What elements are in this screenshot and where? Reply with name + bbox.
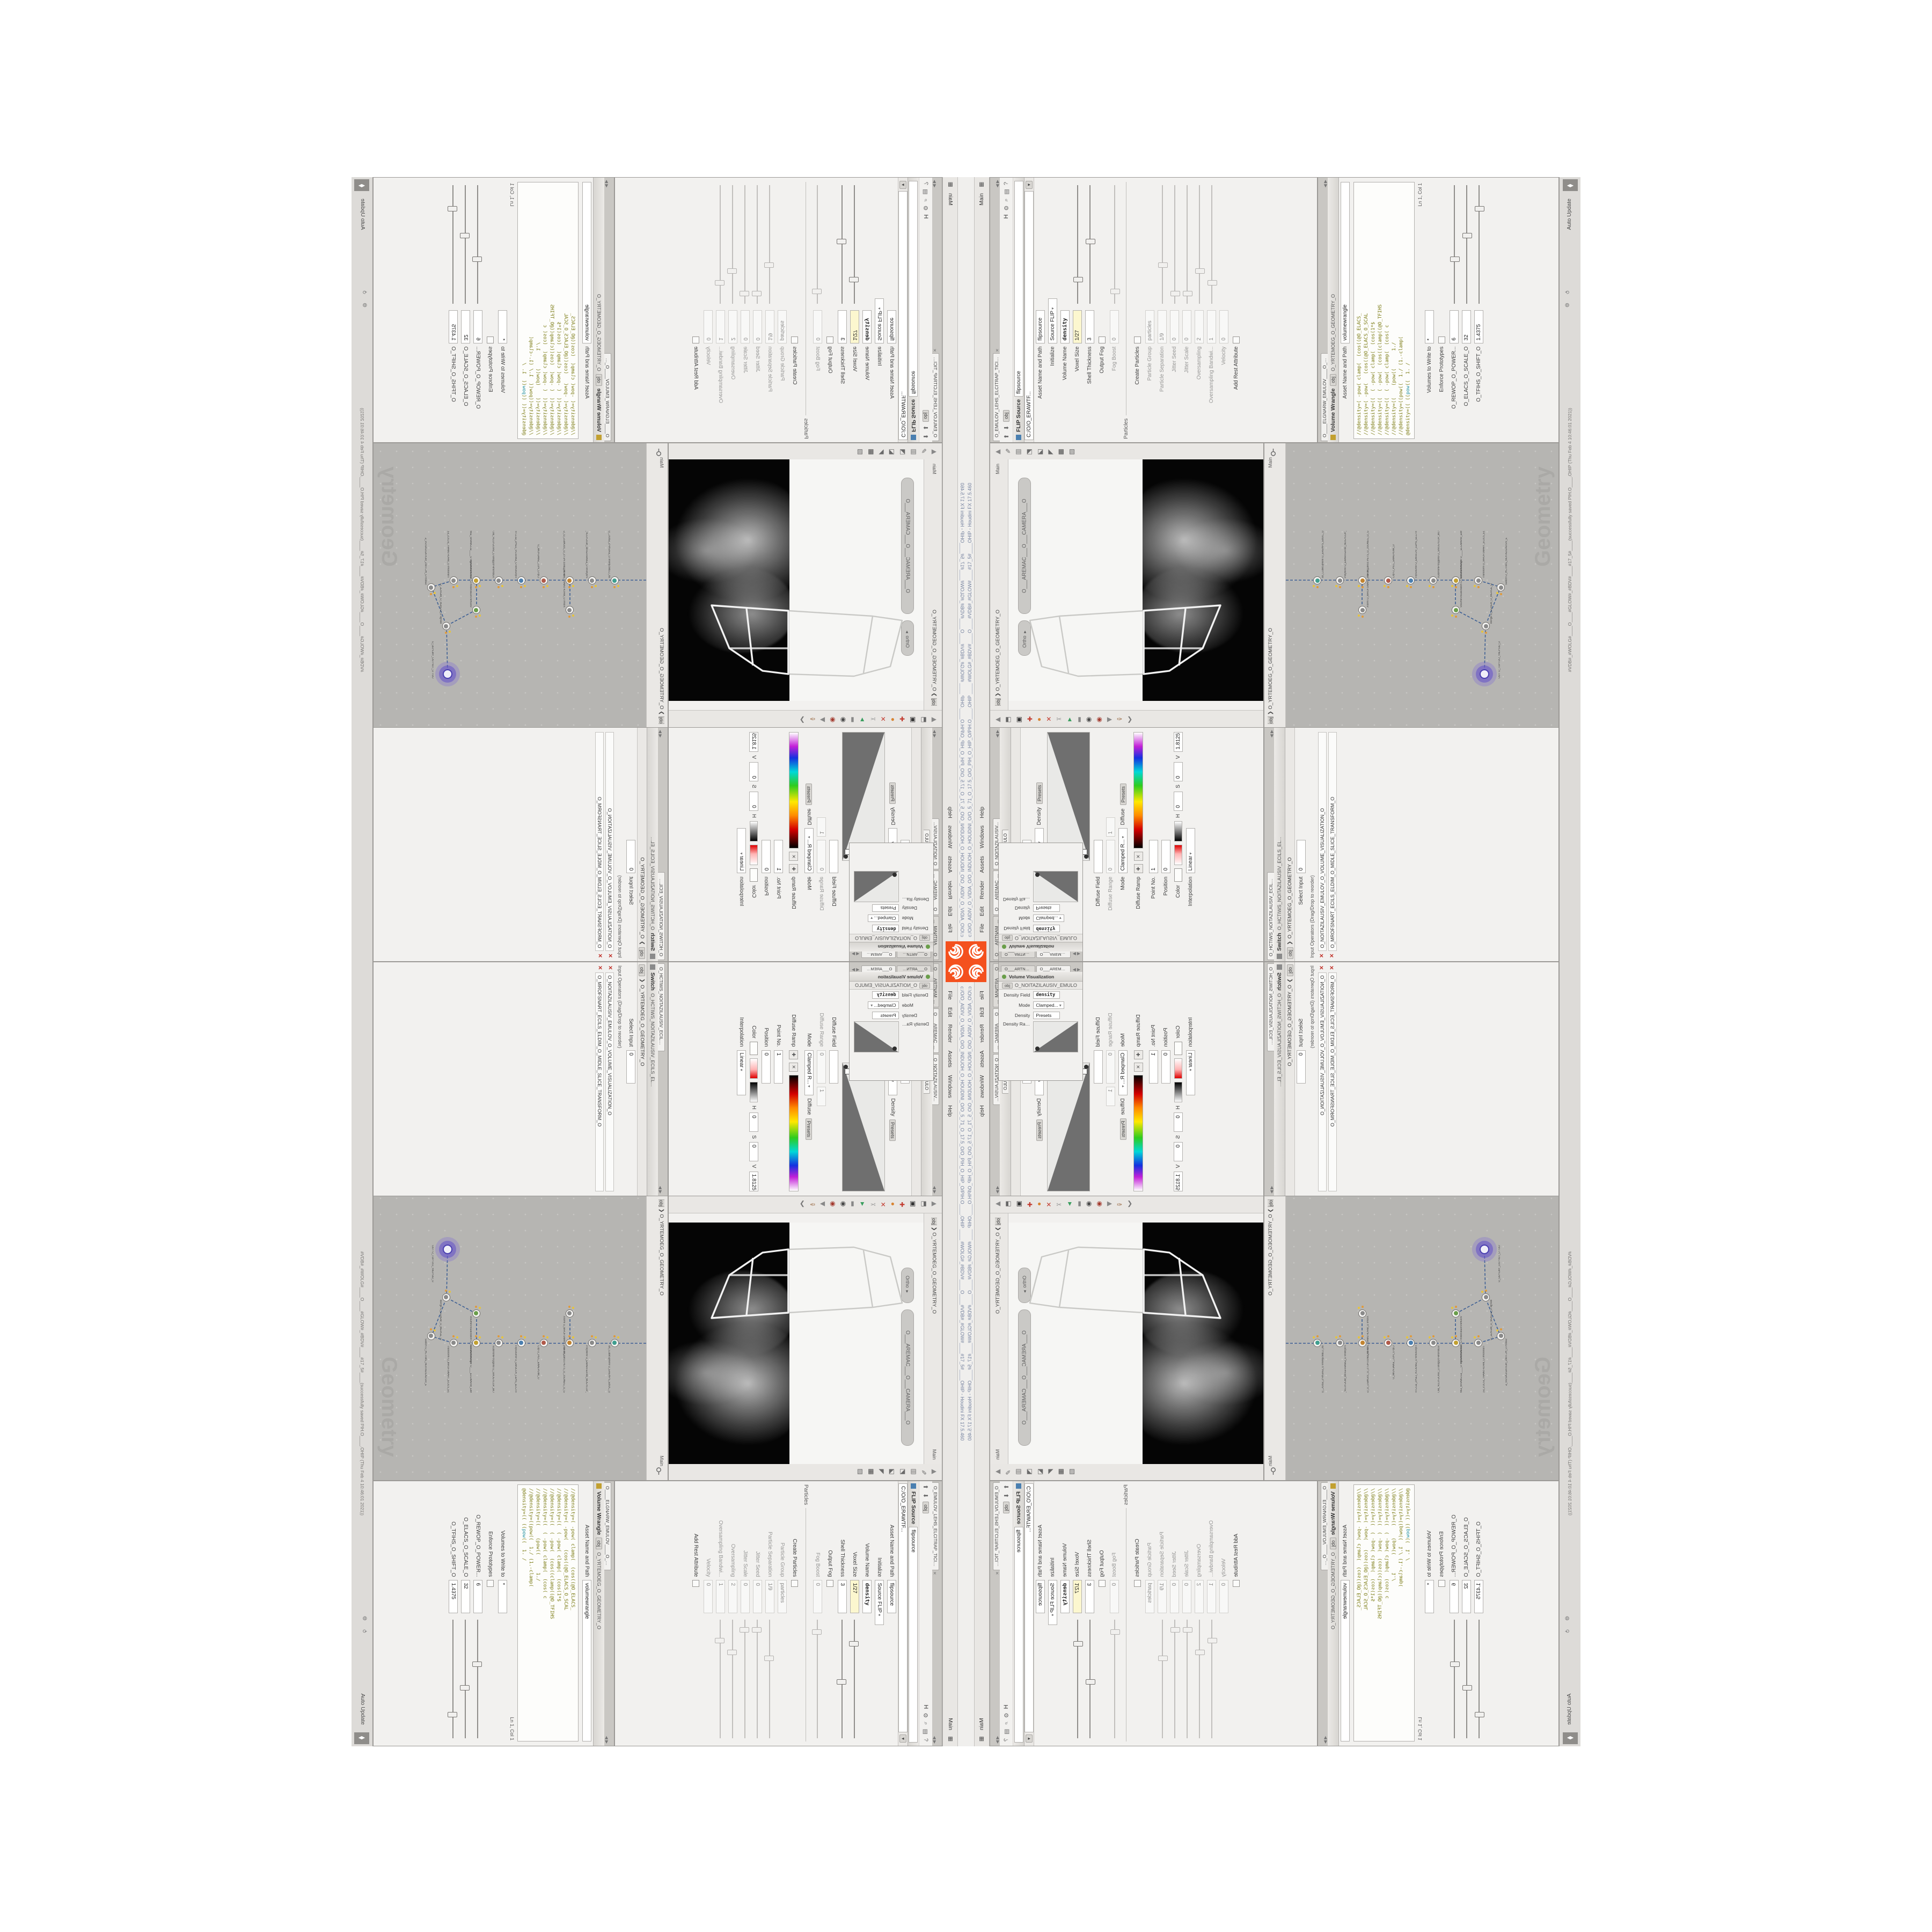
network-node-file[interactable] <box>566 1339 574 1347</box>
tab-scroll-icon[interactable]: ◀ <box>1073 952 1076 956</box>
network-node-file[interactable] <box>1358 576 1366 584</box>
desktop-main-label[interactable]: Main <box>978 193 985 206</box>
tab-scroll-icon[interactable]: ▶ <box>1077 967 1080 972</box>
param-field[interactable]: 3 <box>838 310 847 343</box>
value-gradient[interactable] <box>750 821 758 841</box>
param-slider[interactable] <box>1454 185 1455 304</box>
tab-switch[interactable]: O_HCTIWS_NOITAZILAUSIV_ECILS_ELDIM_O_MID… <box>1267 872 1274 960</box>
menu-item-render[interactable]: Render <box>947 881 953 899</box>
param-slider[interactable] <box>1077 185 1078 304</box>
toolbar-icon[interactable]: ◧ <box>1005 715 1011 723</box>
pin-icon[interactable]: ⚲ <box>1269 1466 1279 1476</box>
param-field[interactable]: Presets <box>872 1012 899 1019</box>
param-field-2[interactable]: 1 <box>1106 1087 1115 1106</box>
toolbar-icon[interactable]: ◣ <box>1048 448 1053 455</box>
param-field[interactable] <box>829 1050 838 1084</box>
network-node-xform[interactable] <box>1358 606 1366 614</box>
toolbar-icon[interactable]: ✎ <box>1005 448 1011 455</box>
network-node-merge[interactable] <box>1482 622 1490 630</box>
network-node-an_cubesphere[interactable] <box>1313 576 1321 584</box>
toolbar-icon[interactable]: ◉ <box>1096 715 1102 723</box>
checkbox[interactable] <box>791 1580 798 1587</box>
pin-icon[interactable]: ⚲ <box>653 1466 663 1476</box>
s-field[interactable]: 0 <box>749 762 758 781</box>
pane-tab[interactable]: O___AREMAC_... <box>1036 952 1071 958</box>
up-arrow-icon[interactable]: ⬆ <box>1003 434 1010 439</box>
ramp-add-button[interactable]: ✚ <box>789 1050 799 1059</box>
pane-tab[interactable]: O___AREMAC_... <box>861 952 896 958</box>
v-field[interactable]: 1.8125 <box>749 1172 758 1191</box>
tab-scroll-icon[interactable]: ▶ <box>852 952 855 956</box>
toolbar-icon[interactable]: ❯ <box>1127 715 1132 723</box>
param-field[interactable]: Source FLIP <box>1048 1580 1057 1625</box>
param-field[interactable]: particles <box>1145 310 1154 343</box>
desktop-icon[interactable]: ▦ <box>947 181 954 188</box>
node-flag-badge[interactable] <box>1485 1290 1487 1292</box>
param-slider[interactable] <box>1479 1620 1480 1738</box>
param-field[interactable]: 1 <box>774 1050 783 1084</box>
toolbar-icon[interactable]: ◀ <box>932 715 936 723</box>
flip-name-field[interactable]: flipsource <box>1014 181 1023 397</box>
param-field[interactable]: density <box>872 925 899 933</box>
viewport-main-label[interactable]: Main <box>995 464 1000 474</box>
crumb-obj[interactable]: obj <box>923 1502 929 1513</box>
vex-code-editor[interactable]: //@density=( -pow( clamp( (cos((@O_ELACS… <box>517 1484 579 1741</box>
toolbar-icon[interactable]: ▮ <box>851 715 854 723</box>
param-slider[interactable] <box>733 1620 734 1738</box>
network-main-label[interactable]: Main <box>659 1455 664 1466</box>
param-field[interactable]: Linear <box>737 1050 746 1095</box>
toolbar-icon[interactable]: ◍ <box>1565 302 1569 308</box>
viewport-canvas[interactable]: O___AREMAC___O___CAMERA___O Ortho ▾ <box>668 1223 924 1464</box>
param-slider[interactable] <box>1199 1620 1200 1738</box>
param-slider[interactable] <box>770 1620 771 1738</box>
toolbar-icon[interactable]: ◩ <box>899 448 905 455</box>
network-node-polywire[interactable] <box>1336 576 1344 584</box>
switch-node-path[interactable]: O_YRTEMOEG_O_GEOMETRY_O <box>1287 985 1293 1066</box>
menu-item-windows[interactable]: Windows <box>947 1075 953 1098</box>
network-node-clip[interactable] <box>1384 1339 1392 1347</box>
node-flag-badge[interactable] <box>430 593 432 595</box>
remove-input-icon[interactable]: ✕ <box>597 965 603 970</box>
toolbar-icon[interactable]: ◀ <box>996 715 1000 723</box>
network-main-label[interactable]: Main <box>659 457 664 468</box>
hue-gradient[interactable] <box>1174 1058 1182 1079</box>
viewport-node-path[interactable]: O_YRTEMOEG_O_GEOMETRY_O <box>995 1232 1001 1314</box>
network-node-volumewrangle[interactable] <box>472 1339 480 1347</box>
network-node-merge[interactable] <box>442 1293 450 1301</box>
param-field[interactable]: density <box>1060 310 1070 343</box>
node-flag-badge[interactable] <box>617 585 619 587</box>
network-node-an_cubesphere[interactable] <box>611 576 619 584</box>
node-flag-badge[interactable] <box>1477 1335 1480 1337</box>
param-field-2[interactable]: 1 <box>817 817 826 837</box>
tab-scroll-icon[interactable]: ◀ <box>932 1186 937 1189</box>
param-slider[interactable] <box>1089 185 1091 304</box>
tab-scroll-icon[interactable]: ▶ <box>1077 952 1080 956</box>
toolbar-icon[interactable]: ◍ <box>363 302 367 308</box>
param-slider[interactable] <box>854 185 855 304</box>
input-operator-name[interactable]: O_MROFSNART_ECILS_ELDIM_O_MIDLE_SLICE_TR… <box>1328 972 1337 1191</box>
toolbar-icon[interactable]: ◧ <box>920 1201 926 1208</box>
checkbox[interactable] <box>487 1580 494 1587</box>
density-ramp-widget[interactable] <box>1047 732 1090 861</box>
remove-input-icon[interactable]: ✕ <box>607 954 613 958</box>
toolbar-icon[interactable]: ▶ <box>820 1201 825 1208</box>
input-operator-name[interactable]: O_MROFSNART_ECILS_ELDIM_O_MIDLE_SLICE_TR… <box>1328 732 1337 951</box>
param-field[interactable]: 0 <box>1297 840 1306 873</box>
up-arrow-icon[interactable]: ⬆ <box>1003 1484 1010 1489</box>
crumb-obj[interactable]: obj <box>919 983 930 989</box>
param-field[interactable]: 32 <box>1462 310 1471 343</box>
network-node-volumevisualization[interactable] <box>1452 606 1460 614</box>
remove-input-icon[interactable]: ✕ <box>1329 965 1335 970</box>
param-slider[interactable] <box>1174 1620 1175 1738</box>
crumb-obj[interactable]: obj <box>1330 374 1336 386</box>
checkbox[interactable] <box>1134 336 1141 343</box>
node-flag-badge[interactable] <box>1455 1335 1457 1337</box>
toolbar-icon[interactable]: ◩ <box>1027 1468 1033 1476</box>
up-arrow-icon[interactable]: ⬆ <box>923 1484 930 1489</box>
param-field[interactable]: 3 <box>1085 310 1094 343</box>
param-field[interactable]: Linear <box>1186 828 1195 873</box>
network-node-display-out[interactable] <box>1472 1237 1497 1262</box>
node-flag-badge[interactable] <box>1451 1307 1453 1309</box>
toolbar-icon[interactable]: ▣ <box>1016 1201 1022 1208</box>
toolbar-icon[interactable]: H <box>1003 1704 1010 1709</box>
param-field[interactable]: particles <box>778 310 787 343</box>
network-node-display-out[interactable] <box>1472 662 1497 686</box>
menu-item-edit[interactable]: Edit <box>947 1007 953 1017</box>
node-flag-badge[interactable] <box>1474 1336 1476 1338</box>
param-field[interactable]: 0 <box>762 1050 771 1084</box>
toolbar-icon[interactable]: ✕ <box>881 1201 886 1208</box>
toolbar-icon[interactable]: ◉ <box>1096 1201 1102 1208</box>
toolbar-icon[interactable]: ◉ <box>830 1201 835 1208</box>
param-slider[interactable] <box>817 185 818 304</box>
network-node-clip[interactable] <box>540 576 548 584</box>
node-flag-badge[interactable] <box>479 1336 481 1338</box>
node-flag-badge[interactable] <box>595 585 597 587</box>
toolbar-icon[interactable]: ⌕ <box>923 199 930 202</box>
ramp-add-button[interactable]: ✚ <box>1134 1050 1143 1059</box>
param-field[interactable]: 0 <box>753 1580 762 1613</box>
param-field[interactable]: flipsource <box>887 310 896 343</box>
param-field[interactable]: 0 <box>626 1050 635 1084</box>
param-field[interactable]: 0 <box>753 310 762 343</box>
pane-tab[interactable]: O___AREMAC_... <box>1036 965 1071 972</box>
node-flag-badge[interactable] <box>1432 1335 1435 1337</box>
value-gradient[interactable] <box>750 1082 758 1102</box>
toolbar-icon[interactable]: ▧ <box>857 448 863 455</box>
toolbar-icon[interactable]: ✂ <box>870 715 876 723</box>
wrangle-name-field[interactable]: volumewrangle <box>1341 182 1350 343</box>
toolbar-icon[interactable]: ✚ <box>899 1201 905 1208</box>
crumb-obj[interactable]: obj <box>1268 1199 1274 1207</box>
network-node-transform[interactable] <box>1474 1339 1482 1347</box>
param-slider[interactable] <box>1162 1620 1163 1738</box>
toolbar-icon[interactable]: H <box>1003 215 1010 219</box>
menu-item-windows[interactable]: Windows <box>979 1075 985 1098</box>
crumb-obj[interactable]: obj <box>1003 1502 1009 1513</box>
param-field[interactable]: flipsource <box>887 1580 896 1613</box>
node-flag-badge[interactable] <box>1358 1307 1360 1309</box>
crumb-obj[interactable]: obj <box>658 1199 664 1207</box>
node-flag-badge[interactable] <box>497 1335 500 1337</box>
param-field[interactable]: * <box>1425 1580 1434 1613</box>
param-field[interactable] <box>829 840 838 873</box>
toolbar-icon[interactable]: ✕ <box>881 715 886 723</box>
toolbar-icon[interactable]: ✑ <box>810 715 815 723</box>
density-ramp-widget[interactable] <box>842 732 885 861</box>
color-swatch[interactable] <box>1174 1042 1182 1055</box>
param-slider[interactable] <box>1114 185 1115 304</box>
toolbar-icon[interactable]: H <box>923 1704 930 1709</box>
toolbar-icon[interactable]: ◧ <box>1005 1201 1011 1208</box>
node-flag-badge[interactable] <box>1387 586 1389 588</box>
toolbar-icon[interactable]: ✎ <box>1005 1468 1011 1476</box>
scroll-arrows[interactable]: ◀▶ <box>1563 1732 1578 1744</box>
network-node-path[interactable]: O_YRTEMOEG_O_GEOMETRY_O <box>1268 628 1274 709</box>
toolbar-icon[interactable]: ▦ <box>1058 448 1064 455</box>
param-slider[interactable] <box>453 185 454 304</box>
network-node-path[interactable]: O_YRTEMOEG_O_GEOMETRY_O <box>1268 1214 1274 1296</box>
value-gradient[interactable] <box>1174 821 1182 841</box>
node-flag-badge[interactable] <box>520 586 522 588</box>
param-field[interactable]: 1/9 <box>1158 1580 1167 1613</box>
toolbar-icon[interactable]: ● <box>891 715 895 723</box>
param-field[interactable]: 1.4375 <box>1474 1580 1483 1613</box>
param-field[interactable]: * <box>498 310 507 343</box>
param-slider[interactable] <box>842 1620 843 1738</box>
toolbar-icon[interactable]: ✚ <box>899 715 905 723</box>
toolbar-icon[interactable]: ▦ <box>1058 1468 1064 1476</box>
toolbar-icon[interactable]: ⚙ <box>923 1713 930 1718</box>
param-field[interactable]: Clamped R... <box>804 1050 814 1095</box>
node-flag-badge[interactable] <box>479 585 481 587</box>
param-field[interactable]: 1/9 <box>765 1580 774 1613</box>
node-flag-badge[interactable] <box>452 586 455 588</box>
down-arrow-icon[interactable]: ⬇ <box>923 426 930 430</box>
toolbar-icon[interactable]: ● <box>891 1201 895 1208</box>
toolbar-icon[interactable]: ▲ <box>1066 1201 1073 1208</box>
node-flag-badge[interactable] <box>1358 585 1360 587</box>
checkbox[interactable] <box>1233 336 1240 343</box>
color-swatch[interactable] <box>750 1042 758 1055</box>
param-field[interactable]: 6 <box>473 310 482 343</box>
toolbar-icon[interactable]: ▤ <box>1003 189 1010 194</box>
node-flag-badge[interactable] <box>572 1336 574 1338</box>
param-field[interactable]: Clamped... <box>868 915 898 923</box>
scroll-arrows[interactable]: ◀▶ <box>354 179 369 191</box>
tab-switch[interactable]: O_HCTIWS_NOITAZILAUSIV_ECILS_ELDIM_O_MID… <box>1267 963 1274 1051</box>
network-node-switch[interactable] <box>1497 1332 1505 1340</box>
param-field[interactable]: Clamped R... <box>1118 828 1128 873</box>
toolbar-icon[interactable]: ◀ <box>996 448 1000 455</box>
param-slider[interactable] <box>842 185 843 304</box>
param-field[interactable]: 2 <box>728 310 737 343</box>
node-flag-badge[interactable] <box>1500 593 1502 595</box>
param-slider[interactable] <box>1211 185 1212 304</box>
node-flag-badge[interactable] <box>1335 1336 1337 1338</box>
menu-item-help[interactable]: Help <box>979 807 985 818</box>
flip-path-menu[interactable]: ▾ <box>899 181 906 189</box>
param-field[interactable]: 32 <box>461 310 470 343</box>
toolbar-icon[interactable]: ▧ <box>1069 1468 1075 1476</box>
toolbar-icon[interactable]: ▦ <box>868 448 874 455</box>
node-flag-badge[interactable] <box>475 616 477 618</box>
scroll-arrows[interactable]: ◀▶ <box>354 1732 369 1744</box>
density-ramp-widget[interactable] <box>1033 871 1078 902</box>
node-flag-badge[interactable] <box>1451 585 1453 587</box>
checkbox[interactable] <box>1099 1580 1106 1587</box>
toolbar-icon[interactable]: ◩ <box>1027 448 1033 455</box>
param-field[interactable]: 0 <box>1110 310 1119 343</box>
toolbar-icon[interactable]: ▣ <box>910 1201 916 1208</box>
param-slider[interactable] <box>745 1620 746 1738</box>
toolbar-icon[interactable]: ▮ <box>1078 715 1081 723</box>
network-main-label[interactable]: Main <box>1268 1455 1273 1466</box>
viewport-canvas[interactable]: O___AREMAC___O___CAMERA___O Ortho ▾ <box>1008 459 1264 701</box>
checkbox[interactable] <box>826 336 833 343</box>
param-field[interactable]: 1/9 <box>1158 310 1167 343</box>
presets-button[interactable]: Presets <box>1120 784 1126 806</box>
s-field[interactable]: 0 <box>1174 1142 1183 1161</box>
menu-item-edit[interactable]: Edit <box>947 906 953 916</box>
network-node-volumevisualization[interactable] <box>472 1309 480 1318</box>
network-node-transform[interactable] <box>1474 576 1482 584</box>
pane-tab[interactable]: O___ARTNAM_... <box>1001 965 1035 972</box>
menu-item-assets[interactable]: Assets <box>947 1050 953 1067</box>
network-node-transform[interactable] <box>450 1339 458 1347</box>
toolbar-icon[interactable]: ⟲ <box>1565 290 1569 296</box>
param-slider[interactable] <box>757 185 758 304</box>
network-node-file[interactable] <box>566 576 574 584</box>
param-field[interactable]: 0 <box>1106 840 1115 873</box>
flip-path-menu[interactable]: ▾ <box>1026 181 1033 189</box>
node-flag-badge[interactable] <box>1477 586 1480 588</box>
node-flag-badge[interactable] <box>1358 614 1360 617</box>
crumb-obj[interactable]: obj <box>931 1218 937 1225</box>
node-flag-badge[interactable] <box>1429 1336 1431 1338</box>
hue-gradient[interactable] <box>750 1058 758 1079</box>
network-node-clip[interactable] <box>540 1339 548 1347</box>
toolbar-icon[interactable]: ✚ <box>1027 1201 1033 1208</box>
param-field[interactable]: 1 <box>716 310 725 343</box>
toolbar-icon[interactable]: H <box>923 215 930 219</box>
node-flag-badge[interactable] <box>430 1328 432 1330</box>
node-flag-badge[interactable] <box>568 1335 570 1337</box>
param-field[interactable]: 0 <box>1182 310 1191 343</box>
node-flag-badge[interactable] <box>1358 1336 1360 1338</box>
param-slider[interactable] <box>1162 185 1163 304</box>
param-field[interactable]: 0 <box>1161 840 1170 873</box>
presets-button[interactable]: Presets <box>806 1118 813 1140</box>
param-field[interactable]: 0 <box>1161 1050 1170 1084</box>
param-field[interactable]: 3 <box>1085 1580 1094 1613</box>
flip-name-field[interactable]: flipsource <box>909 1527 918 1743</box>
param-field[interactable]: Clamped... <box>868 1001 898 1009</box>
crumb-obj[interactable]: obj <box>639 947 646 959</box>
param-slider[interactable] <box>1077 1620 1078 1738</box>
node-flag-badge[interactable] <box>1316 586 1319 588</box>
crumb-obj[interactable]: obj <box>1287 947 1293 959</box>
tab-scroll-icon[interactable]: ◀ <box>995 734 1000 737</box>
tab-scroll-icon[interactable]: ◀ <box>856 967 859 972</box>
network-canvas[interactable]: Geometry an_CubeSphere O_EREHPS_EBUC_O_C… <box>373 1196 646 1480</box>
desktop-icon[interactable]: ▦ <box>978 181 985 188</box>
checkbox[interactable] <box>791 336 798 343</box>
network-canvas[interactable]: Geometry an_CubeSphere O_EREHPS_EBUC_O_C… <box>1286 443 1559 728</box>
menu-item-help[interactable]: Help <box>947 807 953 818</box>
network-node-merge[interactable] <box>442 622 450 630</box>
param-field[interactable]: 1/27 <box>850 310 859 343</box>
network-node-vdbfrompolygons[interactable] <box>1429 576 1437 584</box>
param-field[interactable]: Clamped R... <box>804 828 814 873</box>
wrangle-name-field[interactable]: volumewrangle <box>582 182 591 343</box>
menu-item-file[interactable]: File <box>947 991 953 1000</box>
presets-button[interactable]: Presets <box>890 782 896 804</box>
tab-scroll-icon[interactable]: ▶ <box>852 967 855 972</box>
param-field[interactable]: Presets <box>872 905 899 912</box>
param-field[interactable]: 0 <box>813 1580 822 1613</box>
param-field[interactable]: density <box>872 991 899 999</box>
param-field[interactable]: density <box>1033 925 1060 933</box>
pane-tab[interactable]: O___AREMAC_... <box>861 965 896 972</box>
flip-asset-path-field[interactable]: C:/O/O_ERAWTF... <box>1024 191 1034 440</box>
node-flag-badge[interactable] <box>568 1306 570 1308</box>
param-field[interactable]: 1.4375 <box>449 310 458 343</box>
network-node-flipsource[interactable] <box>1407 1339 1415 1347</box>
param-field[interactable]: 1 <box>716 1580 725 1613</box>
param-slider[interactable] <box>1479 185 1480 304</box>
tab-scroll-icon[interactable]: ◀ <box>856 952 859 956</box>
param-field[interactable]: 1.4375 <box>1474 310 1483 343</box>
crumb-obj[interactable]: obj <box>923 410 929 422</box>
toolbar-icon[interactable]: ◣ <box>879 448 883 455</box>
toolbar-icon[interactable]: ▶ <box>1107 1201 1112 1208</box>
tab-flip-source[interactable]: O_EMULOV_LEHS_ELCITRAP_TICILPMI_DIULF_O_… <box>932 353 939 441</box>
toolbar-icon[interactable]: ✂ <box>1056 715 1062 723</box>
ramp-del-button[interactable]: ✕ <box>1134 852 1143 861</box>
toolbar-icon[interactable]: ✎ <box>921 1468 927 1476</box>
viewport-node-path[interactable]: O_YRTEMOEG_O_GEOMETRY_O <box>995 610 1001 691</box>
crumb-obj[interactable]: obj <box>596 374 602 386</box>
toolbar-icon[interactable]: ▲ <box>859 715 866 723</box>
input-operator-name[interactable]: O_NOITAZILAUSIV_EMULOV_O_VOLUME_VISUALIZ… <box>1318 972 1327 1191</box>
param-slider[interactable] <box>1199 185 1200 304</box>
param-slider[interactable] <box>817 1620 818 1738</box>
s-field[interactable]: 0 <box>1174 762 1183 781</box>
param-field[interactable]: 32 <box>1462 1580 1471 1613</box>
node-flag-badge[interactable] <box>1410 586 1412 588</box>
toolbar-icon[interactable]: ❯ <box>800 715 805 723</box>
viewport-main-label[interactable]: Main <box>995 1449 1000 1460</box>
param-field[interactable]: 0 <box>1219 1580 1228 1613</box>
param-field[interactable]: Presets <box>1033 1012 1060 1019</box>
menu-item-render[interactable]: Render <box>979 1024 985 1043</box>
menu-item-help[interactable]: Help <box>979 1106 985 1117</box>
node-flag-badge[interactable] <box>613 586 616 588</box>
param-field[interactable]: particles <box>778 1580 787 1613</box>
node-flag-badge[interactable] <box>1362 1306 1364 1308</box>
network-node-transform[interactable] <box>450 576 458 584</box>
param-field[interactable]: 0 <box>1297 1050 1306 1084</box>
param-field[interactable]: 2 <box>1195 310 1204 343</box>
node-flag-badge[interactable] <box>1313 1336 1315 1338</box>
viewport-node-path[interactable]: O_YRTEMOEG_O_GEOMETRY_O <box>931 610 937 691</box>
checkbox[interactable] <box>1099 336 1106 343</box>
